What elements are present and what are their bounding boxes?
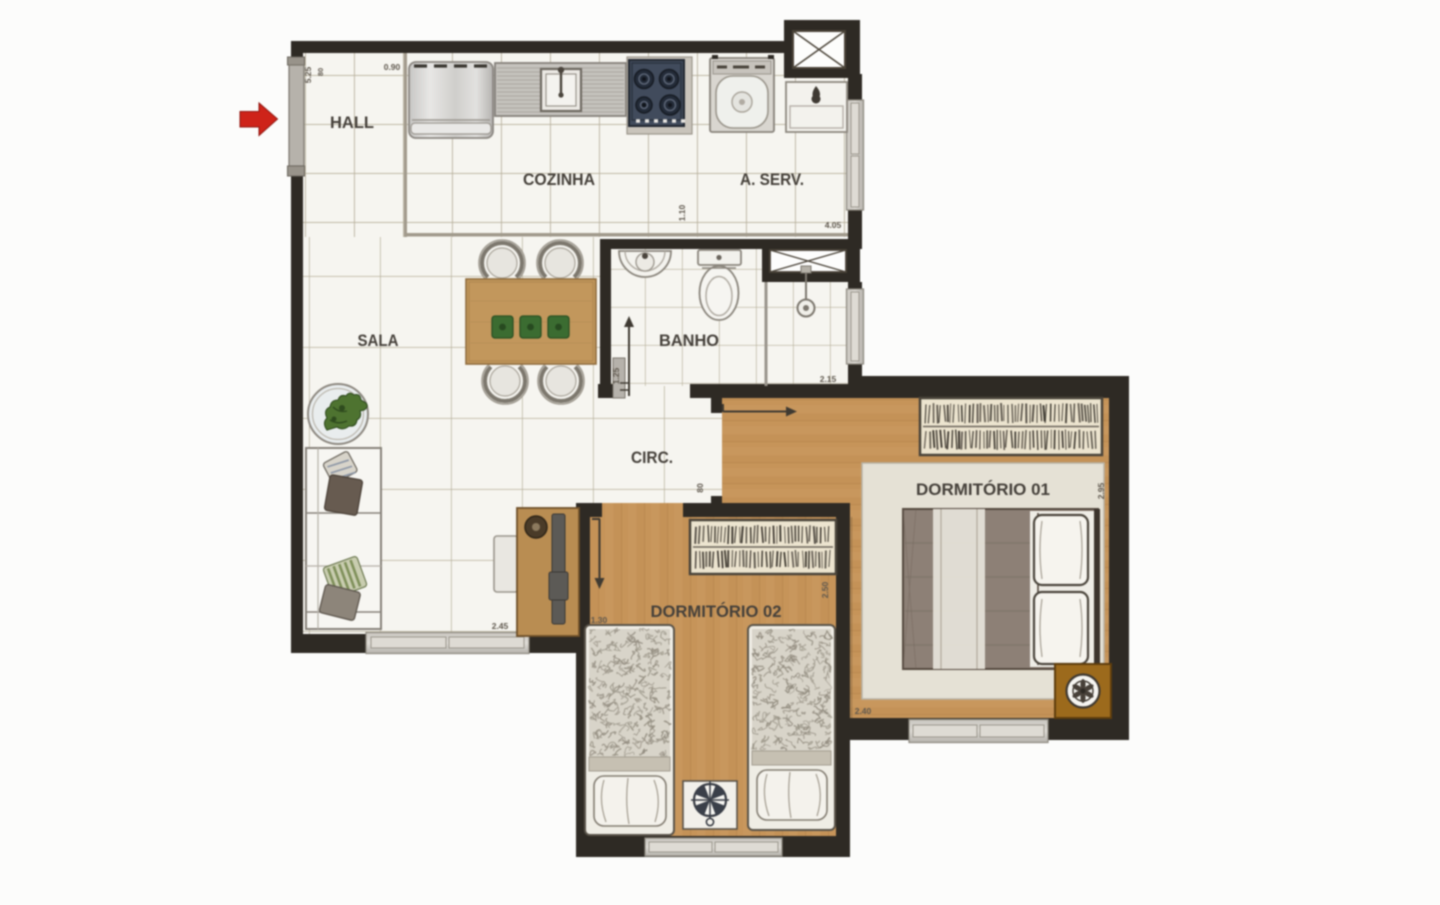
svg-text:0.90: 0.90 [384,62,401,72]
svg-text:2.95: 2.95 [1096,482,1106,499]
svg-text:2.15: 2.15 [820,374,837,384]
svg-text:DORMITÓRIO 01: DORMITÓRIO 01 [916,480,1050,499]
svg-text:1.10: 1.10 [677,204,687,221]
svg-text:5.25: 5.25 [303,66,313,83]
svg-text:80: 80 [695,483,705,493]
svg-text:2.45: 2.45 [492,621,509,631]
svg-text:CIRC.: CIRC. [631,448,673,467]
svg-text:BANHO: BANHO [659,331,719,350]
svg-text:HALL: HALL [330,113,374,132]
svg-text:2.40: 2.40 [855,706,872,716]
svg-text:A. SERV.: A. SERV. [740,170,804,189]
svg-text:DORMITÓRIO 02: DORMITÓRIO 02 [651,602,782,621]
svg-text:SALA: SALA [358,331,399,350]
svg-text:COZINHA: COZINHA [523,170,595,189]
svg-text:1.30: 1.30 [591,615,608,625]
svg-text:2.50: 2.50 [820,581,830,598]
svg-text:4.05: 4.05 [825,220,842,230]
svg-text:80: 80 [316,68,325,76]
svg-text:1.25: 1.25 [611,367,621,384]
